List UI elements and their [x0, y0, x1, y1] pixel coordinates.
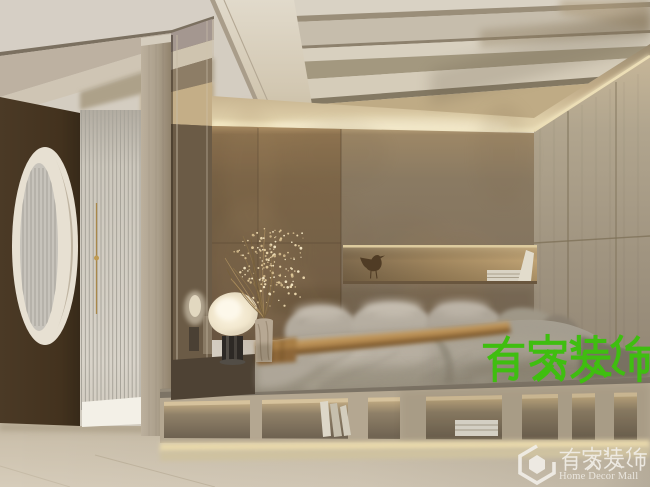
- svg-text:Home Decor Mall: Home Decor Mall: [559, 471, 638, 482]
